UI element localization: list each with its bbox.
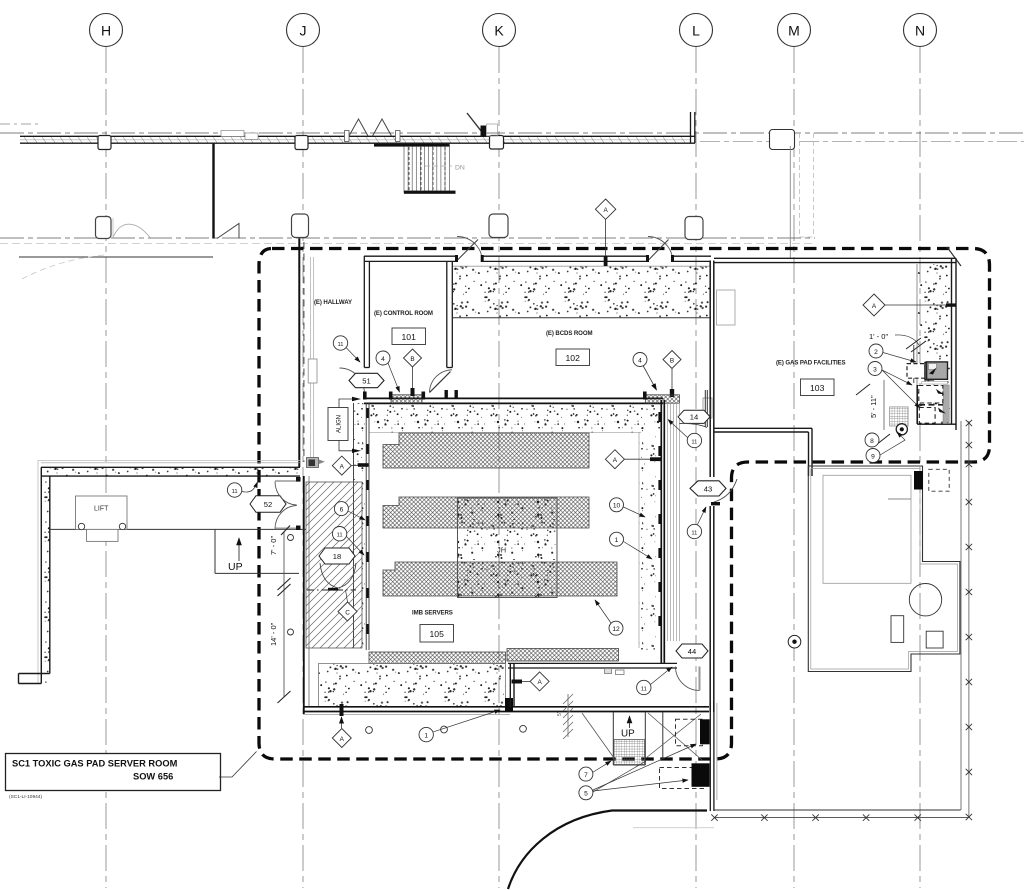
svg-text:11: 11 (641, 686, 647, 692)
svg-text:JH: JH (497, 546, 506, 555)
svg-text:44: 44 (688, 647, 696, 656)
svg-text:5' - 11": 5' - 11" (869, 395, 878, 418)
svg-text:M: M (788, 23, 800, 39)
svg-text:6: 6 (340, 506, 344, 513)
svg-text:4: 4 (638, 357, 642, 364)
svg-text:5: 5 (584, 791, 588, 798)
svg-text:A: A (872, 303, 877, 310)
svg-text:SC1 TOXIC GAS PAD SERVER ROOM: SC1 TOXIC GAS PAD SERVER ROOM (12, 759, 178, 769)
svg-text:B: B (670, 357, 674, 364)
svg-text:SOW 656: SOW 656 (133, 772, 173, 782)
svg-text:43: 43 (704, 485, 712, 494)
svg-text:A: A (537, 679, 542, 686)
svg-text:A: A (340, 736, 345, 743)
svg-text:1' - 0": 1' - 0" (869, 332, 888, 341)
svg-text:(E) BCDS ROOM: (E) BCDS ROOM (546, 330, 592, 337)
svg-text:(E) GAS PAD FACILITIES: (E) GAS PAD FACILITIES (776, 360, 845, 367)
svg-text:1: 1 (615, 537, 619, 544)
svg-text:B: B (410, 356, 414, 363)
svg-text:7: 7 (584, 772, 588, 779)
svg-text:L: L (692, 23, 700, 39)
svg-text:LIFT: LIFT (94, 506, 109, 513)
svg-text:14' - 0": 14' - 0" (269, 622, 278, 646)
svg-text:12: 12 (612, 626, 620, 633)
svg-text:A: A (613, 457, 618, 464)
svg-text:4: 4 (381, 356, 385, 363)
svg-text:11: 11 (691, 530, 697, 536)
svg-text:11: 11 (337, 342, 343, 348)
svg-text:18: 18 (333, 552, 341, 561)
svg-text:J: J (300, 23, 307, 39)
svg-text:9: 9 (871, 453, 875, 460)
svg-text:UP: UP (621, 729, 635, 740)
svg-text:2: 2 (874, 349, 878, 356)
svg-text:UP: UP (228, 561, 243, 573)
svg-text:52: 52 (264, 500, 272, 509)
svg-text:51: 51 (362, 377, 370, 386)
svg-text:8: 8 (870, 438, 874, 445)
svg-text:DN: DN (455, 165, 465, 172)
svg-text:A: A (603, 207, 608, 214)
svg-text:7' - 0": 7' - 0" (269, 536, 278, 555)
svg-text:105: 105 (430, 629, 445, 639)
svg-text:(SC1-LI-10944): (SC1-LI-10944) (9, 794, 42, 800)
svg-text:102: 102 (566, 353, 581, 363)
svg-text:(E) HALLWAY: (E) HALLWAY (314, 299, 352, 306)
svg-text:1: 1 (424, 732, 428, 739)
svg-text:N: N (915, 23, 925, 39)
svg-text:IMB SERVERS: IMB SERVERS (412, 610, 453, 617)
svg-text:A: A (340, 463, 345, 470)
svg-text:14: 14 (690, 413, 698, 422)
svg-text:11: 11 (232, 489, 238, 495)
svg-text:10: 10 (613, 503, 621, 510)
svg-text:K: K (494, 23, 504, 39)
svg-text:ALIGN: ALIGN (337, 415, 343, 433)
svg-text:103: 103 (810, 383, 825, 393)
svg-text:11: 11 (337, 533, 343, 539)
svg-text:H: H (101, 23, 111, 39)
svg-text:11: 11 (691, 439, 697, 445)
svg-text:101: 101 (402, 332, 417, 342)
svg-text:3: 3 (873, 366, 877, 373)
svg-text:5': 5' (557, 712, 563, 716)
svg-text:(E) CONTROL ROOM: (E) CONTROL ROOM (374, 310, 433, 317)
svg-text:C: C (345, 609, 350, 616)
